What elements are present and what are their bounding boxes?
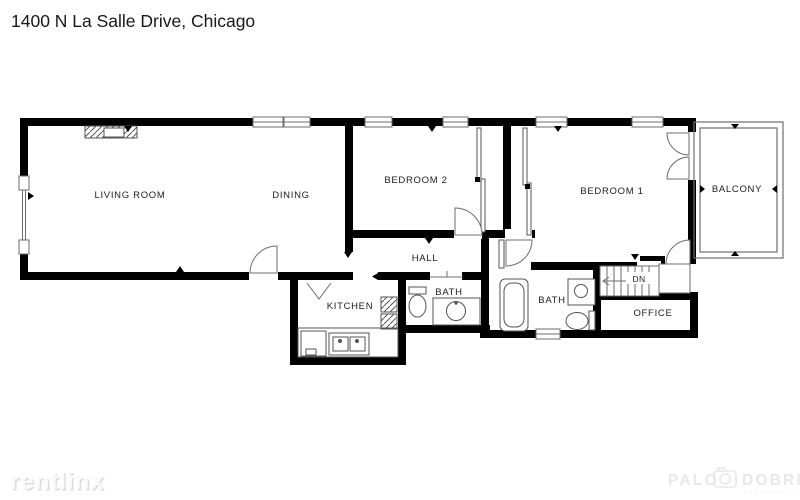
tick-mark bbox=[28, 192, 34, 200]
tick-mark bbox=[631, 254, 639, 260]
window-frame bbox=[19, 240, 29, 254]
label-stairs-dn: DN bbox=[632, 274, 645, 284]
french-door-swing bbox=[667, 133, 689, 155]
wall bbox=[481, 232, 489, 338]
tick-mark bbox=[425, 238, 433, 244]
french-door-swing bbox=[667, 157, 689, 179]
rentlinx-watermark: rentlinx rentlinx bbox=[10, 468, 106, 497]
label-balcony: BALCONY bbox=[712, 184, 762, 195]
stair-landing bbox=[659, 264, 690, 293]
floorplan-canvas: 1400 N La Salle Drive, Chicago bbox=[0, 0, 800, 500]
toilet-tank bbox=[409, 287, 426, 294]
balcony-tick bbox=[772, 185, 777, 193]
tick-mark bbox=[344, 252, 352, 258]
label-kitchen: KITCHEN bbox=[327, 301, 374, 312]
door-swing bbox=[250, 246, 277, 273]
label-hall: HALL bbox=[412, 253, 439, 264]
left-wall-window bbox=[19, 176, 29, 254]
fireplace-firebox bbox=[104, 128, 124, 137]
wall-openings bbox=[249, 132, 697, 281]
tick-mark bbox=[554, 126, 562, 132]
label-bath-1: BATH bbox=[435, 287, 462, 298]
range-icon bbox=[381, 314, 397, 329]
bathtub-inner bbox=[504, 283, 524, 327]
label-bedroom-2: BEDROOM 2 bbox=[384, 175, 447, 186]
range-icon bbox=[381, 297, 397, 312]
wall bbox=[503, 118, 511, 238]
wall bbox=[398, 325, 490, 333]
wall bbox=[290, 357, 406, 365]
label-bedroom-1: BEDROOM 1 bbox=[580, 186, 643, 197]
label-living-room: LIVING ROOM bbox=[94, 190, 165, 201]
wall bbox=[398, 272, 406, 365]
wall bbox=[20, 272, 353, 280]
sliding-door-panel bbox=[527, 183, 531, 235]
sink-icon bbox=[575, 285, 588, 298]
pocket-door bbox=[430, 271, 463, 277]
floorplan-page: 1400 N La Salle Drive, Chicago bbox=[0, 0, 800, 500]
photographer-subtext: PHOTOGRAPHY bbox=[744, 489, 800, 494]
sliding-door-panel bbox=[477, 128, 481, 181]
pantry-door bbox=[307, 283, 331, 299]
faucet-dot bbox=[356, 340, 359, 343]
photographer-watermark: PALO DOBRIK PHOTOGRAPHY bbox=[668, 468, 800, 494]
label-dining: DINING bbox=[272, 190, 309, 201]
camera-lens bbox=[720, 474, 730, 484]
rentlinx-logo: rentlinx bbox=[10, 468, 105, 495]
wall bbox=[20, 118, 696, 126]
photographer-name-last: DOBRIK bbox=[742, 472, 800, 489]
wall bbox=[690, 292, 698, 338]
door-pull-mark bbox=[475, 177, 480, 182]
faucet-dot bbox=[455, 302, 457, 304]
page-title: 1400 N La Salle Drive, Chicago bbox=[11, 11, 255, 31]
dishwasher-detail bbox=[306, 349, 316, 355]
door-swing bbox=[455, 208, 482, 235]
tick-mark bbox=[176, 266, 184, 272]
door-pull-mark bbox=[525, 184, 530, 189]
sliding-door-panel bbox=[523, 128, 527, 185]
wall bbox=[398, 272, 430, 280]
sliding-door-panel bbox=[481, 179, 485, 232]
thin-partition bbox=[499, 240, 504, 268]
wall bbox=[462, 272, 482, 280]
door-swing bbox=[666, 240, 690, 264]
label-bath-2: BATH bbox=[538, 295, 565, 306]
faucet-dot bbox=[339, 340, 342, 343]
photographer-name-first: PALO bbox=[668, 472, 719, 489]
toilet-icon bbox=[409, 295, 426, 317]
balcony-tick bbox=[700, 185, 705, 193]
toilet-icon bbox=[566, 313, 588, 330]
tick-mark bbox=[372, 273, 378, 280]
wall bbox=[290, 272, 298, 365]
window-frame bbox=[19, 176, 29, 190]
door-swing bbox=[506, 240, 532, 266]
toilet-tank bbox=[589, 311, 595, 330]
label-office: OFFICE bbox=[633, 308, 672, 319]
camera-bump bbox=[718, 468, 725, 471]
tick-mark bbox=[428, 126, 436, 132]
